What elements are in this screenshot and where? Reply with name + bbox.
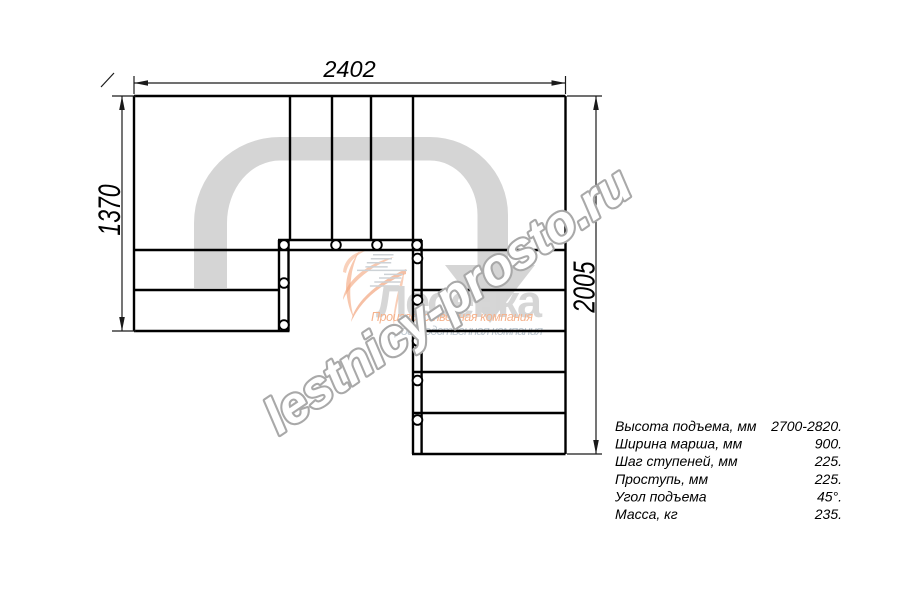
svg-text:Высота подъема, мм: Высота подъема, мм bbox=[615, 418, 757, 434]
svg-text:2700-2820.: 2700-2820. bbox=[770, 418, 842, 434]
svg-text:Масса, кг: Масса, кг bbox=[615, 506, 678, 522]
svg-text:235.: 235. bbox=[814, 506, 842, 522]
svg-text:225.: 225. bbox=[814, 453, 842, 469]
svg-text:900.: 900. bbox=[815, 436, 842, 452]
svg-text:Проступь, мм: Проступь, мм bbox=[615, 471, 709, 487]
svg-text:2402: 2402 bbox=[322, 56, 375, 82]
svg-text:Угол подъема: Угол подъема bbox=[614, 488, 707, 504]
svg-text:2005: 2005 bbox=[567, 261, 601, 314]
svg-text:Ширина марша, мм: Ширина марша, мм bbox=[615, 436, 743, 452]
svg-text:Шаг ступеней, мм: Шаг ступеней, мм bbox=[615, 453, 738, 469]
svg-text:1370: 1370 bbox=[91, 184, 126, 236]
svg-text:225.: 225. bbox=[814, 471, 842, 487]
svg-text:45°.: 45°. bbox=[817, 488, 842, 504]
